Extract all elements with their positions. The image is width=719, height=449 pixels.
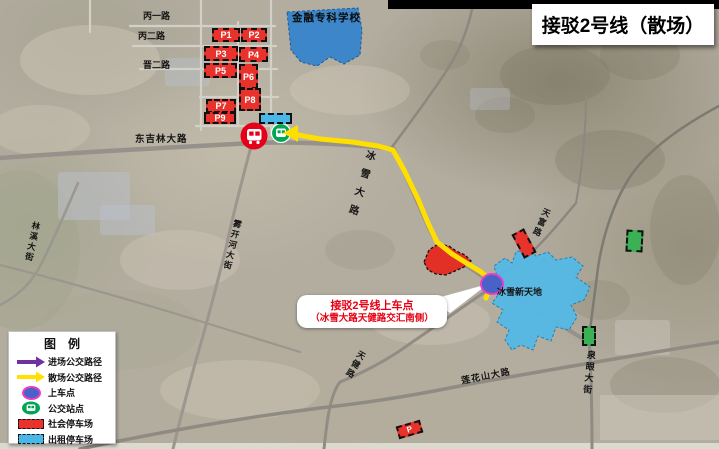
road-label-binger: 丙二路 [138, 32, 165, 41]
map-title-text: 接驳2号线（散场） [542, 11, 705, 38]
yellow-arrow-icon [14, 371, 48, 383]
callout-line1: 接驳2号线上车点 [330, 300, 413, 313]
legend-item-bus-station: 公交站点 [9, 401, 115, 417]
bus-stop-red [241, 123, 268, 150]
parking-lot-p3: P3 [204, 46, 238, 61]
parking-lot-p1: P1 [212, 28, 240, 42]
public-parking-icon [14, 419, 48, 429]
shuttle-route-map: 金融专科学校 冰雪新天地 丙一路 丙二路 晋二路 东吉林大路 冰雪大路 雾开河大… [0, 0, 719, 449]
taxi-parking-zone [259, 113, 292, 124]
legend-label: 出租停车场 [48, 433, 93, 446]
bus-station-icon [14, 401, 48, 415]
venue-label: 冰雪新天地 [497, 288, 542, 297]
taxi-parking-icon [14, 434, 48, 444]
road-label-dongjilin: 东吉林大路 [135, 135, 188, 145]
legend-label: 公交站点 [48, 402, 84, 415]
departure-route [283, 125, 492, 298]
legend-label: 散场公交路径 [48, 371, 102, 384]
parking-lot-p8: P8 [239, 88, 261, 111]
map-title: 接驳2号线（散场） [532, 4, 714, 45]
road-northeast-line [392, 0, 474, 147]
road-label-jiner: 晋二路 [143, 61, 170, 70]
legend-item-taxi-parking: 出租停车场 [9, 432, 115, 448]
callout-line2: （冰雪大路天健路交汇南侧） [310, 313, 434, 324]
legend-item-departure-route: 散场公交路径 [9, 370, 115, 386]
legend: 图 例 进场公交路径 散场公交路径 上车点 公交站点 社会停车场 [8, 331, 116, 444]
purple-arrow-icon [14, 356, 48, 368]
parking-lot-p7: P7 [206, 99, 236, 113]
road-label-bingyi: 丙一路 [143, 12, 170, 21]
school-label: 金融专科学校 [292, 13, 361, 24]
parking-lot-p6: P6 [239, 64, 258, 89]
parking-lot-p9: P9 [204, 112, 236, 124]
green-lot-quanyan [582, 326, 596, 346]
parking-lot-p5: P5 [204, 63, 237, 78]
legend-label: 进场公交路径 [48, 355, 102, 368]
legend-title: 图 例 [9, 335, 115, 352]
legend-item-arrival-route: 进场公交路径 [9, 354, 115, 370]
legend-item-boarding-point: 上车点 [9, 385, 115, 401]
parking-lot-p4: P4 [239, 47, 268, 62]
legend-label: 上车点 [48, 386, 75, 399]
legend-label: 社会停车场 [48, 417, 93, 430]
legend-item-public-parking: 社会停车场 [9, 416, 115, 432]
parking-lot-p2: P2 [241, 28, 267, 42]
boarding-dot-icon [14, 386, 48, 400]
boarding-point-callout: 接驳2号线上车点 （冰雪大路天健路交汇南侧） [297, 295, 447, 328]
green-lot-east [625, 230, 643, 253]
